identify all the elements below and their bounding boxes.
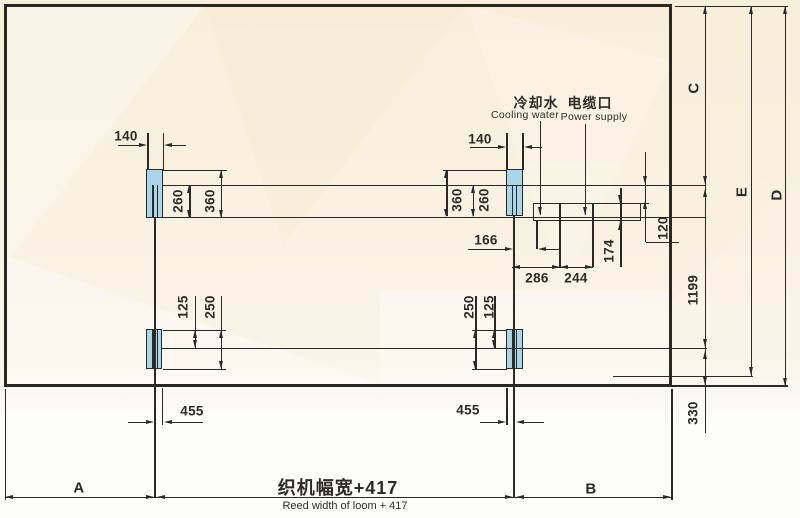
dimension-arrow [703,189,707,197]
dimension-line [172,145,186,146]
dimension-arrow [5,495,13,499]
machine-outline [4,4,672,387]
dimension-line [152,185,153,217]
mounting-foot-top-left [146,169,163,218]
dimension-arrow [473,361,477,369]
dimension-line [536,221,537,249]
mounting-foot-top-right [506,169,523,216]
dimension-line [163,170,227,171]
dimension-line [559,203,560,267]
dim-letter-c: C [686,82,703,93]
reed-width-label-cn: 织机幅宽+417 [278,474,399,500]
dimension-arrow [703,351,707,359]
dimension-arrow [164,143,172,147]
dimension-arrow [193,330,197,338]
dimension-arrow [538,207,542,215]
dimension-arrow [187,185,191,193]
dimension-arrow [146,420,154,424]
dimension-arrow [618,195,622,203]
dim-letter-e: E [734,187,751,197]
dimension-arrow [538,247,546,251]
dim-1199: 1199 [686,275,701,306]
dimension-arrow [471,209,475,217]
dimension-line [516,185,517,215]
installation-diagram: 冷却水 Cooling water 电缆口 Power supply 140 1… [0,0,800,518]
dimension-arrow [618,222,622,230]
dimension-line [506,133,507,170]
dim-166: 166 [474,233,497,248]
dimension-arrow [492,340,496,348]
dimension-line [522,133,523,170]
dimension-arrow [139,143,147,147]
dimension-arrow [498,420,506,424]
dimension-arrow [703,377,707,385]
dimension-line [152,330,153,368]
dimension-arrow [703,176,707,184]
dimension-arrow [749,6,753,14]
dim-286: 286 [525,271,548,286]
dimension-arrow [643,201,647,209]
dimension-line [162,388,163,425]
dimension-line [523,422,544,423]
dimension-arrow [783,6,787,14]
dim-120: 120 [656,216,671,239]
dimension-arrow [219,170,223,178]
dimension-arrow [585,265,593,269]
dimension-arrow [516,420,524,424]
dimension-line [705,6,706,433]
dimension-arrow [157,495,165,499]
dimension-line [163,133,164,170]
dimension-line [672,385,788,386]
dimension-line [645,152,646,242]
dimension-line [671,389,672,500]
dimension-arrow [505,495,513,499]
dimension-line [592,203,593,267]
dimension-arrow [492,330,496,338]
dimension-arrow [444,209,448,217]
dim-letter-d: D [769,189,786,200]
dim-174: 174 [602,239,617,262]
dimension-arrow [703,6,707,14]
power-supply-label-cn: 电缆口 [568,93,613,113]
dim-140-left: 140 [114,129,137,144]
dimension-line [646,242,679,243]
dimension-line [613,376,753,377]
dimension-arrow [193,340,197,348]
dimension-arrow [783,378,787,386]
dim-125-right: 125 [482,295,497,318]
dimension-line [675,6,788,7]
dimension-arrow [164,420,172,424]
cooling-water-label-en: Cooling water [491,109,559,121]
dimension-line [513,216,514,497]
dimension-line [154,218,155,497]
dim-125-left: 125 [176,295,191,318]
dimension-arrow [146,495,154,499]
dimension-line [516,330,517,368]
dimension-arrow [512,265,520,269]
reed-width-label-en: Reed width of loom + 417 [282,500,407,512]
dimension-line [128,422,146,423]
dimension-line [751,6,752,376]
dimension-line [163,217,706,218]
dimension-arrow [516,495,524,499]
dimension-line [171,422,203,423]
dimension-arrow [498,145,506,149]
dimension-arrow [663,495,671,499]
dimension-arrow [471,185,475,193]
dim-244: 244 [564,271,587,286]
dim-250-left: 250 [203,295,218,318]
dimension-line [585,124,586,215]
dimension-line [512,330,513,368]
dimension-arrow [560,265,568,269]
dimension-line [506,388,507,425]
dim-140-right: 140 [468,132,491,147]
dim-260-right: 260 [477,188,492,211]
dimension-line [157,330,158,368]
dim-330: 330 [686,401,701,424]
dimension-line [472,369,507,370]
dimension-arrow [552,265,560,269]
dimension-line [512,185,513,215]
dimension-line [163,185,706,186]
background-facet [672,0,800,300]
dim-letter-a: A [73,480,84,497]
dim-360-right: 360 [450,188,465,211]
dim-455-left: 455 [180,404,203,419]
dimension-line [157,185,158,217]
dimension-line [480,422,498,423]
dimension-line [162,348,707,349]
dimension-line [118,145,139,146]
dimension-arrow [219,330,223,338]
dimension-line [5,389,6,500]
dimension-arrow [219,361,223,369]
dimension-arrow [524,145,532,149]
dimension-line [147,133,148,170]
dim-455-right: 455 [456,403,479,418]
dimension-arrow [187,210,191,218]
dimension-arrow [643,176,647,184]
utility-connection-box [533,203,641,221]
dim-letter-b: B [585,481,596,498]
dim-360-left: 360 [203,189,218,212]
dimension-line [540,121,541,215]
dimension-line [472,330,507,331]
power-supply-label-en: Power supply [561,111,628,123]
dimension-line [443,170,507,171]
dimension-arrow [749,367,753,375]
dim-260-left: 260 [171,189,186,212]
dimension-arrow [219,210,223,218]
dimension-arrow [473,330,477,338]
dimension-line [468,249,505,250]
dimension-line [470,147,498,148]
dimension-arrow [505,247,513,251]
dimension-line [163,369,226,370]
dimension-arrow [583,207,587,215]
dim-250-right: 250 [462,295,477,318]
dimension-arrow [703,339,707,347]
dimension-arrow [444,170,448,178]
